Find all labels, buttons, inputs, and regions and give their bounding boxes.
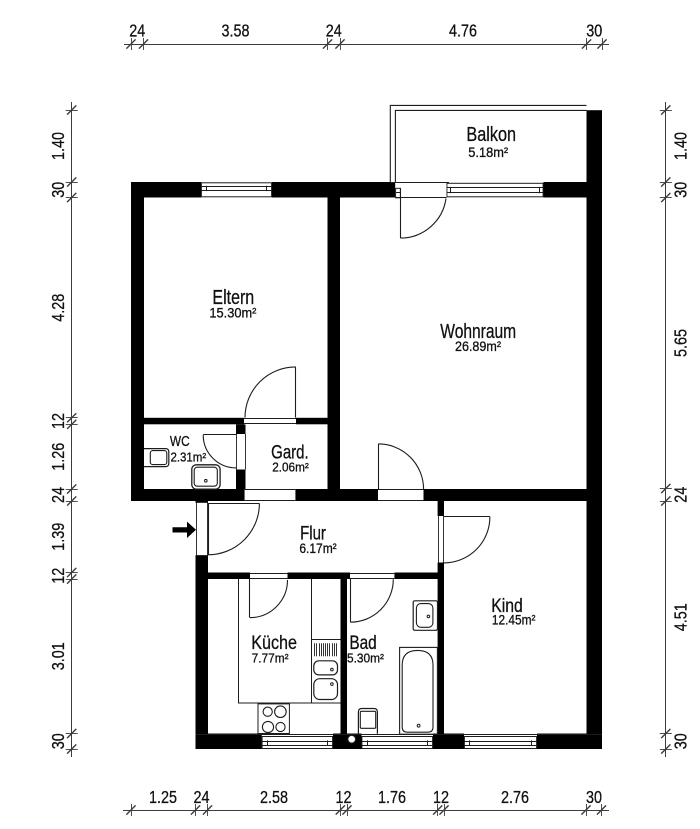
svg-text:24: 24 [49,487,69,503]
svg-text:12: 12 [433,788,449,808]
svg-text:4.51: 4.51 [671,603,691,631]
svg-text:2.76: 2.76 [501,788,529,808]
svg-text:1.40: 1.40 [671,132,691,160]
svg-text:12: 12 [335,788,351,808]
svg-text:12.45m²: 12.45m² [492,612,536,628]
svg-text:5.18m²: 5.18m² [468,145,508,160]
svg-text:2.58: 2.58 [260,788,288,808]
svg-text:30: 30 [586,21,602,41]
svg-text:1.76: 1.76 [378,788,406,808]
svg-text:15.30m²: 15.30m² [209,305,257,320]
svg-text:6.17m²: 6.17m² [299,540,337,556]
svg-text:4.28: 4.28 [49,294,69,322]
svg-text:7.77m²: 7.77m² [252,651,289,666]
svg-text:2.31m²: 2.31m² [170,450,206,465]
svg-text:1.40: 1.40 [49,132,69,160]
svg-text:12: 12 [49,413,69,429]
svg-text:24: 24 [129,21,145,41]
svg-text:24: 24 [193,788,209,808]
svg-text:24: 24 [671,487,691,503]
svg-text:30: 30 [671,733,691,749]
svg-text:24: 24 [326,21,342,41]
svg-text:3.58: 3.58 [221,21,249,41]
svg-text:30: 30 [49,733,69,749]
svg-text:Balkon: Balkon [466,122,516,145]
svg-text:WC: WC [170,433,190,450]
svg-text:30: 30 [49,182,69,198]
svg-text:12: 12 [49,568,69,584]
svg-text:26.89m²: 26.89m² [455,339,502,355]
svg-text:30: 30 [671,182,691,198]
svg-text:4.76: 4.76 [449,21,477,41]
svg-text:1.25: 1.25 [149,788,177,808]
svg-text:5.65: 5.65 [671,329,691,357]
svg-text:1.39: 1.39 [49,523,69,551]
svg-text:2.06m²: 2.06m² [272,460,309,475]
svg-text:30: 30 [586,788,602,808]
svg-text:1.26: 1.26 [49,443,69,471]
svg-text:5.30m²: 5.30m² [347,651,384,666]
svg-text:3.01: 3.01 [49,642,69,670]
